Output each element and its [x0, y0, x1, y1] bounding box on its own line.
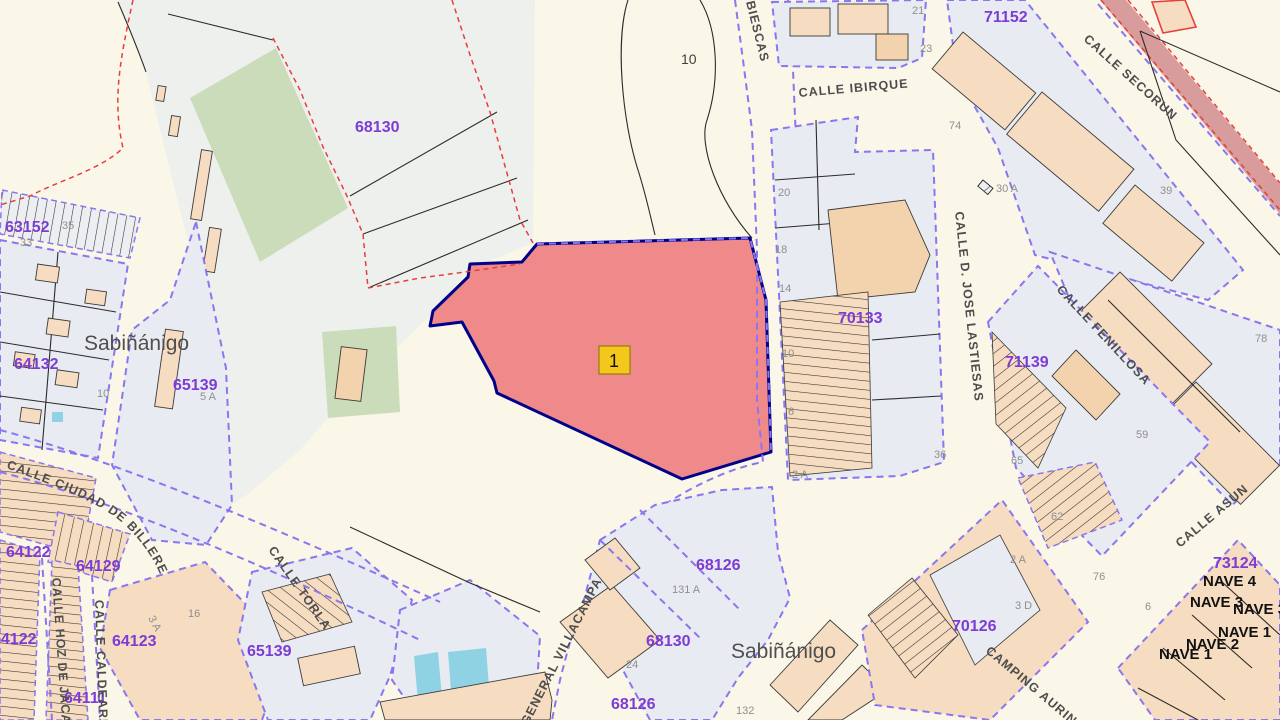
house-number-10-field: 10 — [681, 51, 697, 67]
town-label-right: Sabiñánigo — [731, 640, 836, 663]
house-number-3d: 3 D — [1015, 600, 1032, 612]
swimming-pool-small — [52, 412, 63, 422]
parcel-code-64122-b: 64122 — [0, 631, 37, 648]
parcel-code-63152: 63152 — [5, 219, 50, 236]
house-number-65: 65 — [1011, 455, 1023, 467]
house-number-131a: 131 A — [672, 584, 701, 596]
house-number-33: 33 — [20, 237, 32, 249]
parcel-code-68126-a: 68126 — [696, 557, 741, 574]
parcel-code-68130-low: 68130 — [646, 633, 691, 650]
house-number-74: 74 — [949, 120, 961, 132]
parcel-code-64122-a: 64122 — [6, 544, 51, 561]
nave-label-4: NAVE 4 — [1203, 573, 1257, 590]
house-number-35: 35 — [62, 220, 74, 232]
parcel-marker-number: 1 — [609, 351, 619, 371]
house-number-16: 16 — [188, 608, 200, 620]
nave-label-1b: NAVE 1 — [1159, 646, 1212, 663]
house-number-5a: 5 A — [200, 391, 217, 403]
house-number-24: 24 — [626, 659, 638, 671]
parcel-code-71152: 71152 — [984, 9, 1028, 26]
house-number-6: 6 — [788, 406, 794, 418]
house-number-6-b: 6 — [1145, 601, 1151, 613]
house-number-21: 21 — [912, 5, 924, 17]
parcel-code-70133: 70133 — [838, 310, 883, 327]
house-number-36: 36 — [934, 449, 946, 461]
house-number-2a-b: 2 A — [1010, 554, 1027, 566]
house-number-2a: 2 A — [792, 469, 809, 481]
parcel-code-68130-top: 68130 — [355, 119, 400, 136]
parcel-code-65139-lower: 65139 — [247, 643, 292, 660]
house-number-76: 76 — [1093, 571, 1105, 583]
town-label-left: Sabiñánigo — [84, 332, 189, 355]
parcel-code-68126-b: 68126 — [611, 696, 656, 713]
house-number-20: 20 — [778, 187, 790, 199]
parcel-code-70126: 70126 — [952, 618, 997, 635]
house-number-59: 59 — [1136, 429, 1148, 441]
house-number-23: 23 — [920, 43, 932, 55]
cadastral-map-viewport[interactable]: 1 — [0, 0, 1280, 720]
parcel-code-73124: 73124 — [1213, 555, 1258, 572]
parcel-code-64123: 64123 — [112, 633, 157, 650]
rowhouse-block-64122b[interactable] — [0, 540, 40, 720]
house-number-14: 14 — [779, 283, 791, 295]
parcel-code-64132: 64132 — [14, 356, 59, 373]
nave-label-3b: NAVE 3 — [1233, 601, 1280, 618]
house-number-18: 18 — [775, 244, 787, 256]
house-number-10: 10 — [782, 348, 794, 360]
parcel-marker: 1 — [599, 346, 630, 374]
house-number-30a: 30 A — [996, 183, 1019, 195]
parcel-code-71139: 71139 — [1005, 354, 1049, 371]
parcel-code-64129: 64129 — [76, 558, 121, 575]
house-number-39: 39 — [1160, 185, 1172, 197]
house-number-10-c: 10 — [97, 388, 109, 400]
cadastral-map[interactable]: 1 — [0, 0, 1280, 720]
house-number-62: 62 — [1051, 511, 1063, 523]
house-number-78: 78 — [1255, 333, 1267, 345]
house-number-132: 132 — [736, 705, 754, 717]
